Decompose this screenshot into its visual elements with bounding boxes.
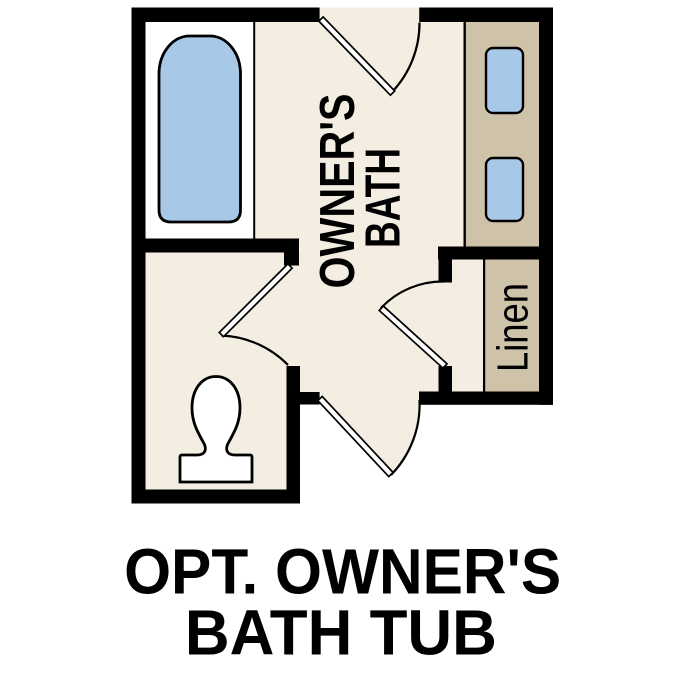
svg-text:BATH TUB: BATH TUB (185, 597, 497, 669)
svg-text:Linen: Linen (489, 283, 538, 372)
svg-text:BATH: BATH (356, 148, 411, 248)
